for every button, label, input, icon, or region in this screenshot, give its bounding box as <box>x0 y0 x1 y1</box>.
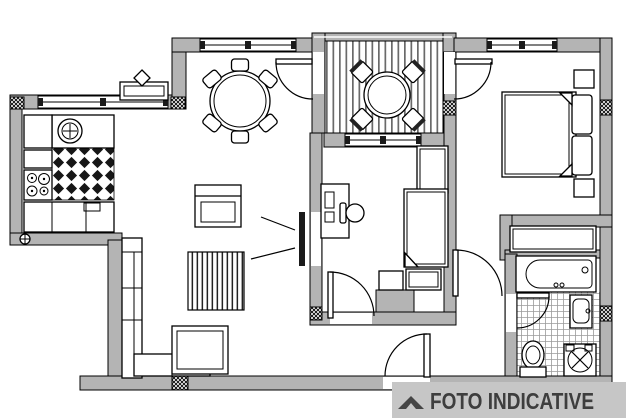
cabinet-icon <box>406 269 441 290</box>
kitchen-checker-floor-icon <box>52 148 114 200</box>
column-hatch-icon <box>600 100 612 115</box>
wall-living-west <box>108 240 122 378</box>
nightstand-icon <box>574 70 594 88</box>
plumbing-symbol-icon <box>20 234 30 244</box>
kitchen-cabinet <box>24 150 52 168</box>
wall-right <box>600 38 612 390</box>
kitchen-cabinet <box>24 115 52 148</box>
door-bedroom-balcony-icon <box>454 59 492 99</box>
wash-basin-icon <box>570 295 592 328</box>
windows <box>38 37 557 146</box>
kitchen-sink-icon <box>58 119 82 143</box>
pillow-icon <box>572 136 592 175</box>
opening-middle-room-door <box>330 313 372 324</box>
opening-bath-door <box>506 294 516 332</box>
office-chair-icon <box>340 203 364 223</box>
double-bed-icon <box>502 92 592 177</box>
window-bedroom-icon <box>487 39 557 51</box>
door-dining-balcony-icon <box>276 59 313 99</box>
column-hatch-icon <box>443 101 456 115</box>
double-door-living-icon <box>251 212 305 266</box>
opening-balcony-dining <box>313 52 324 94</box>
window-middle-room-icon <box>345 134 421 146</box>
study-room <box>321 146 448 290</box>
opening-balcony-bedroom <box>444 52 455 94</box>
wardrobe-icon <box>417 146 448 193</box>
wall-kitchen-left <box>10 95 22 245</box>
column-hatch-icon <box>600 306 612 321</box>
watermark-banner: FOTO INDICATIVE <box>392 382 626 418</box>
window-dining-icon <box>200 39 296 51</box>
tv-cabinet-icon <box>195 185 241 227</box>
living-room-rug-icon <box>188 252 244 310</box>
column-hatch-icon <box>310 307 322 320</box>
stove-icon <box>24 170 52 200</box>
washing-machine-icon <box>564 344 596 376</box>
opening-living-double-door <box>311 212 321 266</box>
door-corridor-icon <box>453 250 502 296</box>
floor-plan-page: FOTO INDICATIVE <box>0 0 626 418</box>
column-hatch-icon <box>171 97 185 109</box>
bathtub-icon <box>516 256 596 292</box>
column-hatch-icon <box>10 97 24 109</box>
dining-table-icon <box>202 59 279 143</box>
toilet-icon <box>520 341 546 377</box>
door-entrance-icon <box>385 334 430 377</box>
floor-plan-drawing: FOTO INDICATIVE <box>0 0 626 418</box>
wall-niche <box>376 290 414 312</box>
column-hatch-icon <box>172 376 188 390</box>
closet-icon <box>510 226 596 252</box>
door-middle-room-icon <box>328 272 374 318</box>
cabinet-icon <box>379 271 403 290</box>
pillow-icon <box>572 95 592 134</box>
nightstand-icon <box>574 179 594 197</box>
exterior-unit-icon <box>120 70 168 100</box>
wall-bedroom-south <box>500 215 612 227</box>
watermark-label: FOTO INDICATIVE <box>430 388 594 414</box>
single-bed-icon <box>404 189 448 267</box>
